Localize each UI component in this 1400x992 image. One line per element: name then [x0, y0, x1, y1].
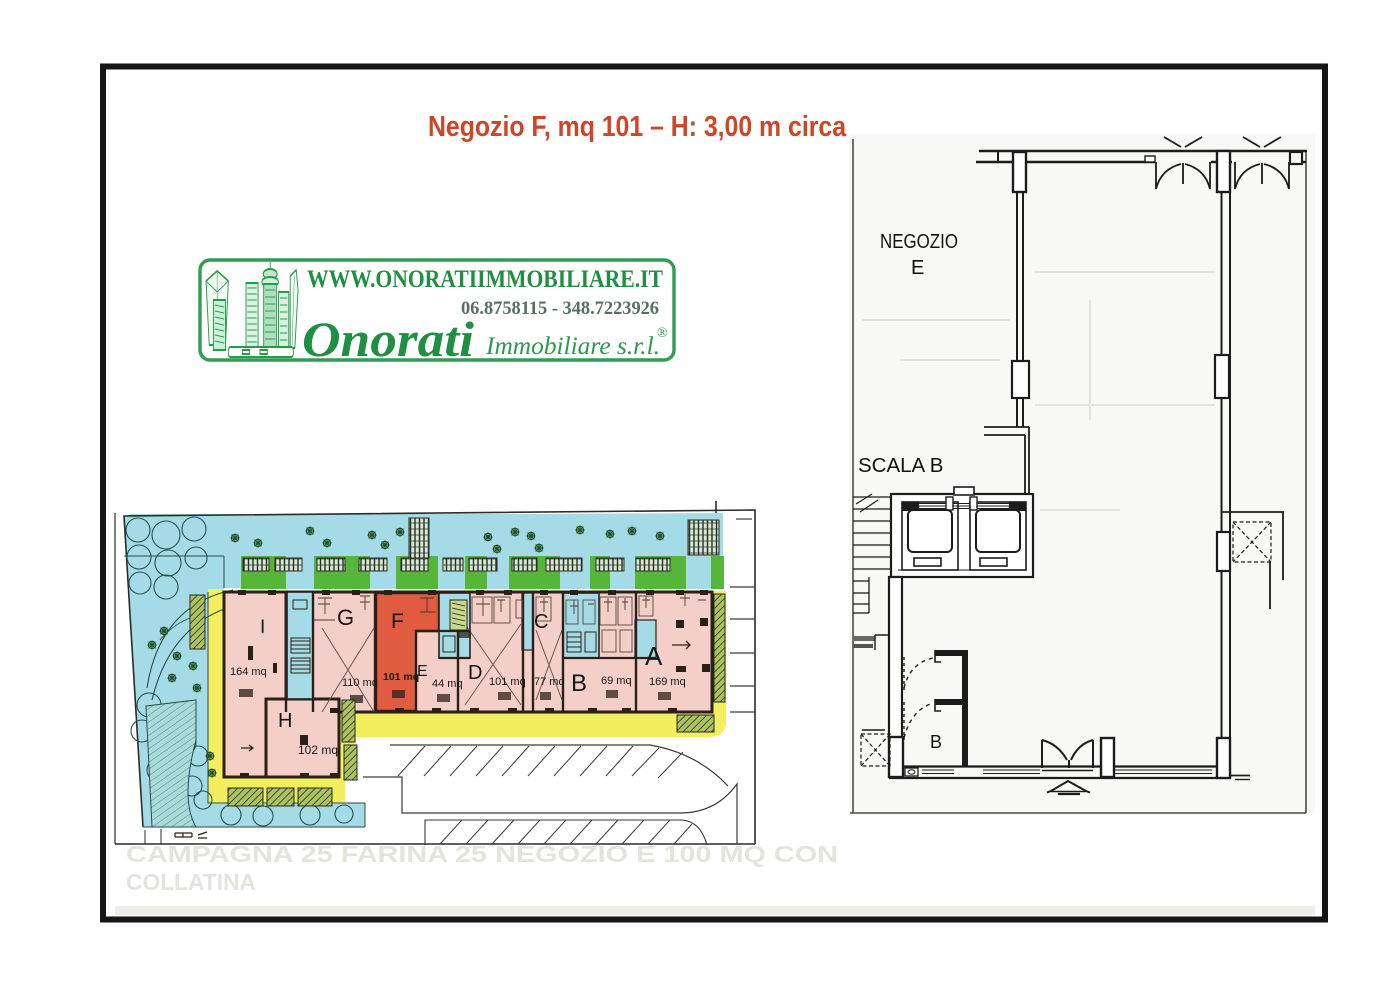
svg-text:Immobiliare s.r.l.: Immobiliare s.r.l.: [485, 333, 660, 360]
svg-text:SCALA B: SCALA B: [858, 454, 943, 477]
svg-text:G: G: [337, 605, 354, 630]
svg-text:H: H: [278, 710, 292, 732]
svg-text:110 mq: 110 mq: [342, 677, 378, 689]
svg-text:77 mq: 77 mq: [534, 676, 565, 688]
svg-text:101 mq: 101 mq: [489, 676, 526, 688]
svg-text:44 mq: 44 mq: [432, 678, 463, 690]
svg-text:F: F: [391, 610, 404, 633]
svg-text:C: C: [534, 611, 548, 633]
svg-text:CAMPAGNA 25 FARINA 25 NEGOZIO: CAMPAGNA 25 FARINA 25 NEGOZIO E 100 MQ C…: [126, 841, 838, 867]
svg-text:101 mq: 101 mq: [383, 671, 419, 683]
svg-text:Onorati: Onorati: [302, 311, 474, 367]
svg-text:164 mq: 164 mq: [230, 666, 267, 678]
svg-text:COLLATINA: COLLATINA: [126, 869, 256, 895]
svg-text:D: D: [468, 662, 482, 684]
svg-text:WWW.ONORATIIMMOBILIARE.IT: WWW.ONORATIIMMOBILIARE.IT: [307, 266, 663, 293]
svg-text:Negozio F, mq 101 – H: 3,00 m: Negozio F, mq 101 – H: 3,00 m circa: [428, 111, 847, 143]
svg-text:B: B: [571, 670, 587, 697]
svg-text:®: ®: [657, 326, 668, 341]
svg-text:A: A: [645, 641, 663, 671]
svg-text:E: E: [911, 257, 924, 279]
svg-text:169 mq: 169 mq: [649, 676, 686, 688]
svg-text:69 mq: 69 mq: [601, 675, 632, 687]
svg-text:I: I: [260, 617, 265, 638]
svg-text:102 mq: 102 mq: [298, 743, 338, 757]
svg-text:B: B: [930, 732, 942, 752]
svg-text:E: E: [417, 663, 428, 680]
svg-text:06.8758115 - 348.7223926: 06.8758115 - 348.7223926: [461, 298, 659, 319]
svg-text:NEGOZIO: NEGOZIO: [880, 231, 958, 253]
